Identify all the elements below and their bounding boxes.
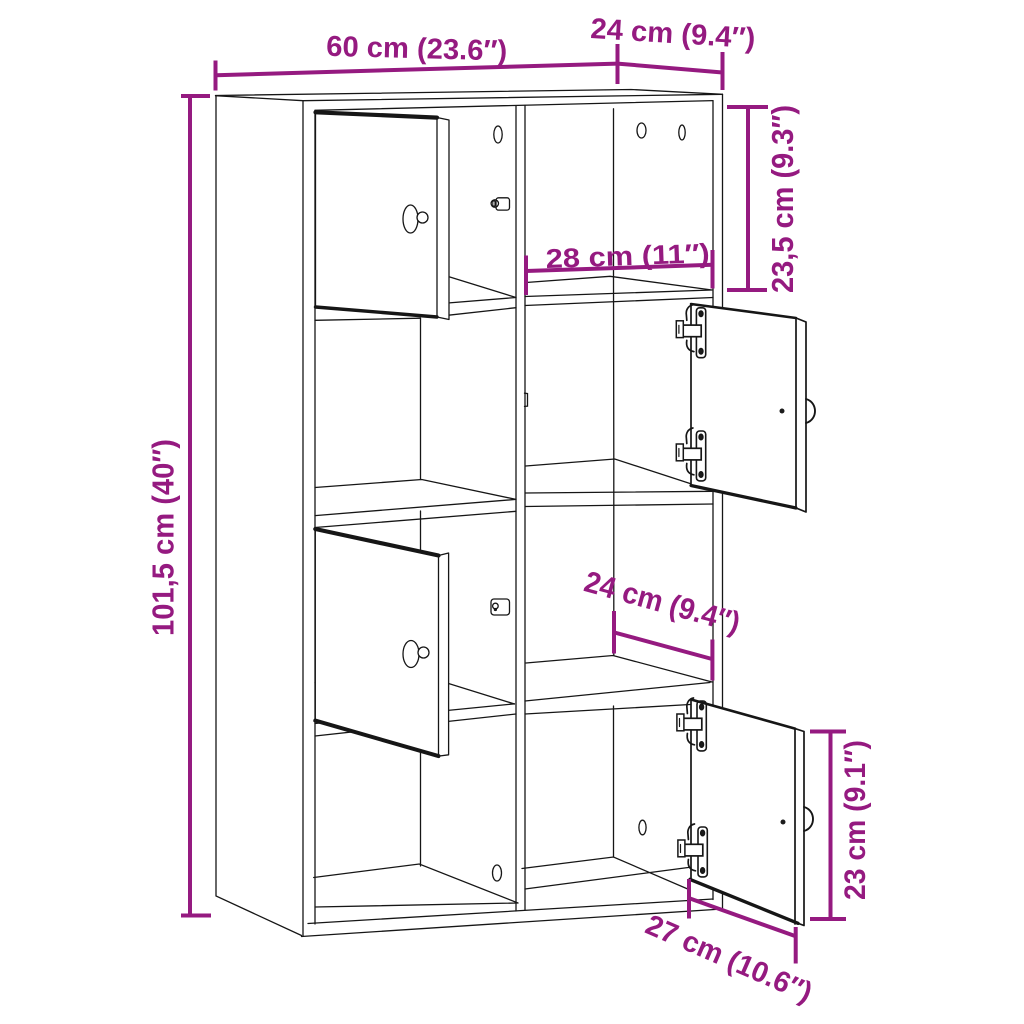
svg-text:23 cm (9.1″): 23 cm (9.1″) — [839, 740, 872, 900]
svg-text:23,5 cm (9.3″): 23,5 cm (9.3″) — [765, 105, 800, 293]
svg-text:28 cm (11″): 28 cm (11″) — [545, 238, 710, 274]
svg-text:101,5 cm (40″): 101,5 cm (40″) — [146, 439, 181, 636]
svg-text:60 cm (23.6″): 60 cm (23.6″) — [326, 31, 508, 68]
